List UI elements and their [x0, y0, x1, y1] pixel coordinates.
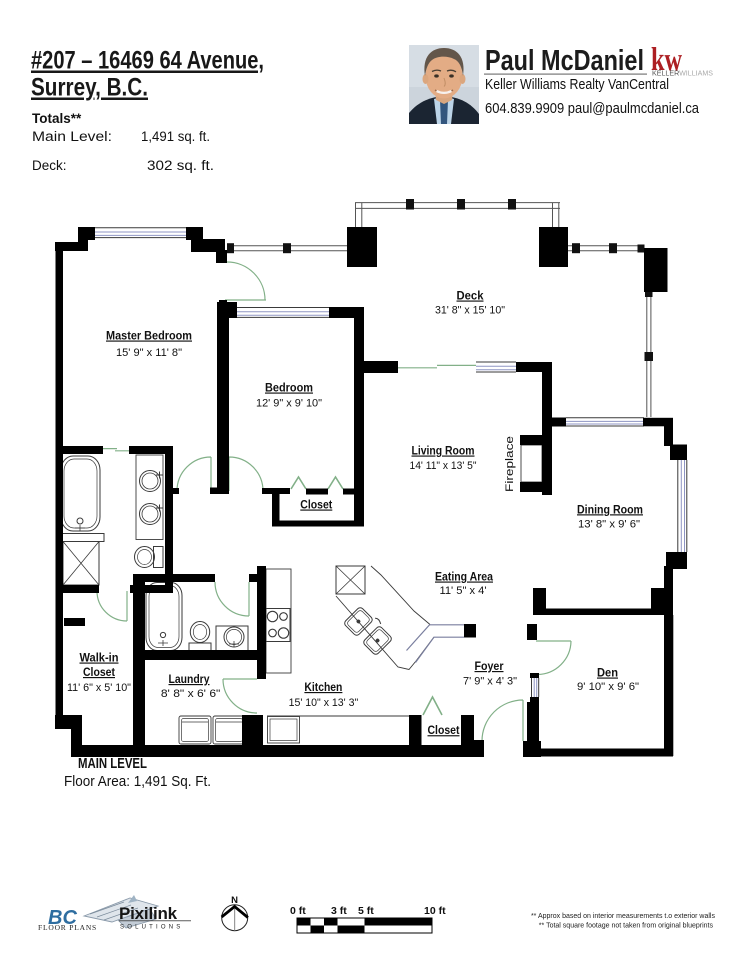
svg-text:Closet: Closet: [300, 499, 332, 512]
svg-text:15' 10" x 13' 3": 15' 10" x 13' 3": [289, 697, 359, 709]
svg-text:302 sq. ft.: 302 sq. ft.: [147, 158, 214, 173]
svg-text:Closet: Closet: [428, 724, 460, 737]
svg-text:Kitchen: Kitchen: [304, 681, 342, 694]
svg-text:Fireplace: Fireplace: [504, 436, 516, 492]
svg-text:5 ft: 5 ft: [358, 905, 374, 917]
svg-text:3 ft: 3 ft: [331, 905, 347, 917]
svg-text:SOLUTIONS: SOLUTIONS: [120, 925, 183, 931]
svg-text:13' 8" x 9' 6": 13' 8" x 9' 6": [578, 518, 640, 530]
svg-text:Floor Area: 1,491 Sq. Ft.: Floor Area: 1,491 Sq. Ft.: [64, 773, 211, 790]
svg-text:10 ft: 10 ft: [424, 905, 446, 917]
svg-text:15' 9" x 11' 8": 15' 9" x 11' 8": [116, 347, 182, 359]
svg-text:Main Level:: Main Level:: [32, 129, 112, 144]
svg-text:Dining Room: Dining Room: [577, 503, 643, 516]
svg-text:Walk-in: Walk-in: [80, 652, 119, 665]
svg-text:Den: Den: [597, 667, 618, 680]
svg-text:0 ft: 0 ft: [290, 905, 306, 917]
svg-text:Bedroom: Bedroom: [265, 382, 313, 395]
svg-text:11' 5" x 4': 11' 5" x 4': [440, 585, 487, 597]
svg-text:Eating Area: Eating Area: [435, 571, 493, 584]
svg-text:9' 10" x 9' 6": 9' 10" x 9' 6": [577, 681, 639, 693]
svg-text:604.839.9909 paul@paulmcdanie: 604.839.9909 paul@paulmcdaniel.ca: [485, 100, 700, 117]
svg-text:Living Room: Living Room: [412, 445, 475, 458]
svg-text:Totals**: Totals**: [32, 111, 82, 126]
svg-text:Deck:: Deck:: [32, 158, 67, 173]
svg-text:Foyer: Foyer: [475, 660, 504, 673]
svg-text:MAIN LEVEL: MAIN LEVEL: [78, 755, 147, 772]
svg-text:11' 6" x 5' 10": 11' 6" x 5' 10": [67, 682, 131, 694]
svg-text:#207 – 16469 64 Avenue,: #207 – 16469 64 Avenue,: [31, 47, 264, 75]
svg-text:Master Bedroom: Master Bedroom: [106, 330, 192, 343]
svg-text:7' 9" x 4' 3": 7' 9" x 4' 3": [463, 676, 517, 688]
svg-text:1,491 sq. ft.: 1,491 sq. ft.: [141, 129, 210, 144]
svg-text:14' 11" x 13' 5": 14' 11" x 13' 5": [410, 460, 477, 472]
svg-text:FLOOR PLANS: FLOOR PLANS: [38, 923, 97, 932]
svg-text:Pixilink: Pixilink: [119, 904, 178, 923]
svg-text:** Total square footage not ta: ** Total square footage not taken from o…: [539, 923, 714, 930]
svg-text:Keller Williams Realty VanCent: Keller Williams Realty VanCentral: [485, 76, 669, 93]
svg-text:8' 8" x 6' 6": 8' 8" x 6' 6": [161, 688, 221, 700]
svg-text:Paul McDaniel: Paul McDaniel: [485, 45, 644, 77]
svg-text:Deck: Deck: [457, 290, 485, 303]
svg-text:Closet: Closet: [83, 666, 115, 679]
svg-text:31' 8" x 15' 10": 31' 8" x 15' 10": [435, 305, 505, 317]
svg-text:** Approx based on interior me: ** Approx based on interior measurements…: [531, 913, 716, 920]
svg-text:N: N: [231, 895, 238, 906]
svg-text:Surrey, B.C.: Surrey, B.C.: [31, 74, 148, 102]
svg-text:12' 9" x 9' 10": 12' 9" x 9' 10": [256, 398, 322, 410]
svg-text:Laundry: Laundry: [169, 673, 210, 686]
